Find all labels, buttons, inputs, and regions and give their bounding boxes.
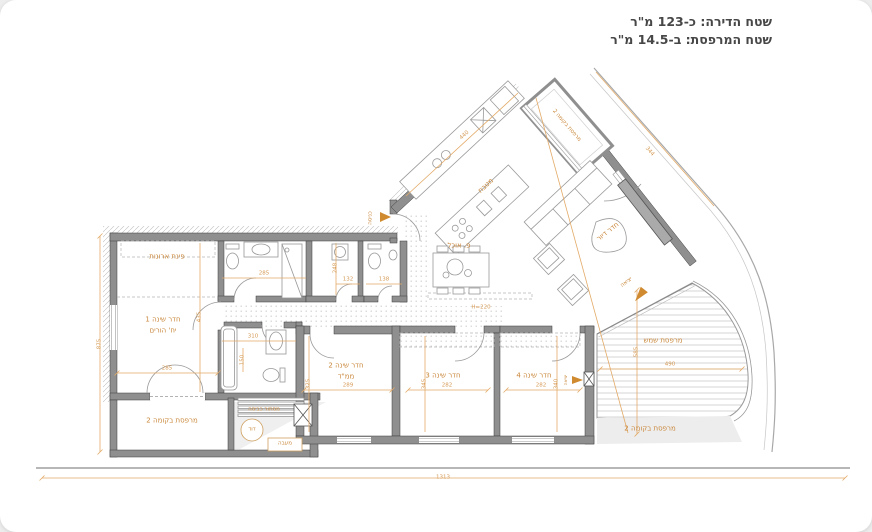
dim-bedroom4-depth: 340 — [554, 379, 560, 390]
label-balcony-left: מרפסת בקומה 2 — [146, 418, 197, 425]
label-dining: פ. אוכל — [447, 243, 470, 250]
label-balcony-right: מרפסת בקומה 2 — [624, 426, 675, 433]
label-condenser: מעבה — [278, 441, 292, 447]
label-exit2: יציאה — [565, 375, 570, 386]
dim-bedroom2-depth: 325 — [306, 379, 312, 390]
dim-wc1-width: 132 — [343, 277, 354, 283]
label-bedroom1-sub: יח' הורים — [150, 328, 177, 335]
toilet-tank — [368, 244, 381, 249]
label-entrance: כניסה — [368, 211, 374, 225]
armchair — [557, 274, 588, 305]
label-closet: פינת ארונות — [149, 254, 184, 261]
toilet-tank — [226, 244, 239, 249]
armchair — [533, 243, 564, 274]
label-height-note: H=220 — [471, 305, 490, 311]
label-boiler: דוד — [248, 427, 256, 433]
dim-bedroom3-width: 282 — [442, 383, 453, 389]
dim-corridor-width: 310 — [248, 334, 259, 340]
toilet-bowl — [227, 253, 239, 269]
toilet-bowl — [369, 253, 381, 269]
sink-basin — [252, 244, 270, 255]
dim-bath-width: 285 — [259, 271, 270, 277]
dim-terrace-depth: 585 — [634, 347, 640, 358]
label-bedroom2: חדר שינה 2 — [328, 363, 363, 370]
balcony-area-text: שטח המרפסת: ב-14.5 מ"ר — [610, 32, 772, 47]
label-bedroom2-sub: ממ"ד — [338, 374, 355, 381]
dim-bedroom3-depth: 345 — [422, 379, 428, 390]
dim-terrace-width: 490 — [665, 362, 676, 368]
dim-bath-depth: 248 — [333, 263, 339, 274]
dim-left-height: 875 — [97, 339, 103, 350]
dim-bedroom2-width: 289 — [343, 383, 354, 389]
dim-bedroom1-width: 285 — [162, 366, 173, 372]
small-sink — [389, 250, 397, 260]
apartment-area-text: שטח הדירה: כ-123 מ"ר — [630, 14, 772, 29]
toilet-tank — [280, 368, 285, 382]
dining-table — [433, 246, 489, 294]
toilet-bowl — [263, 369, 279, 382]
floorplan-svg — [0, 0, 872, 532]
dim-bedroom4-width: 282 — [536, 383, 547, 389]
entrance-arrow — [380, 212, 391, 222]
exit-arrow — [632, 287, 648, 304]
floorplan-page: שטח הדירה: כ-123 מ"ר שטח המרפסת: ב-14.5 … — [0, 0, 872, 532]
bedroom4-exit-arrow — [572, 376, 583, 384]
dim-total-width: 1313 — [436, 475, 450, 481]
dim-bath2-depth: 150 — [240, 355, 246, 366]
label-bedroom3: חדר שינה 3 — [425, 373, 460, 380]
label-bedroom4: חדר שינה 4 — [516, 373, 551, 380]
dim-bedroom1-depth: 435 — [197, 312, 203, 323]
label-sun-terrace: מרפסת שמש — [643, 338, 682, 345]
label-laundry-screen: מסתור כביסה — [248, 407, 280, 413]
label-bedroom1: חדר שינה 1 — [145, 317, 180, 324]
dim-wc2-width: 138 — [379, 277, 390, 283]
